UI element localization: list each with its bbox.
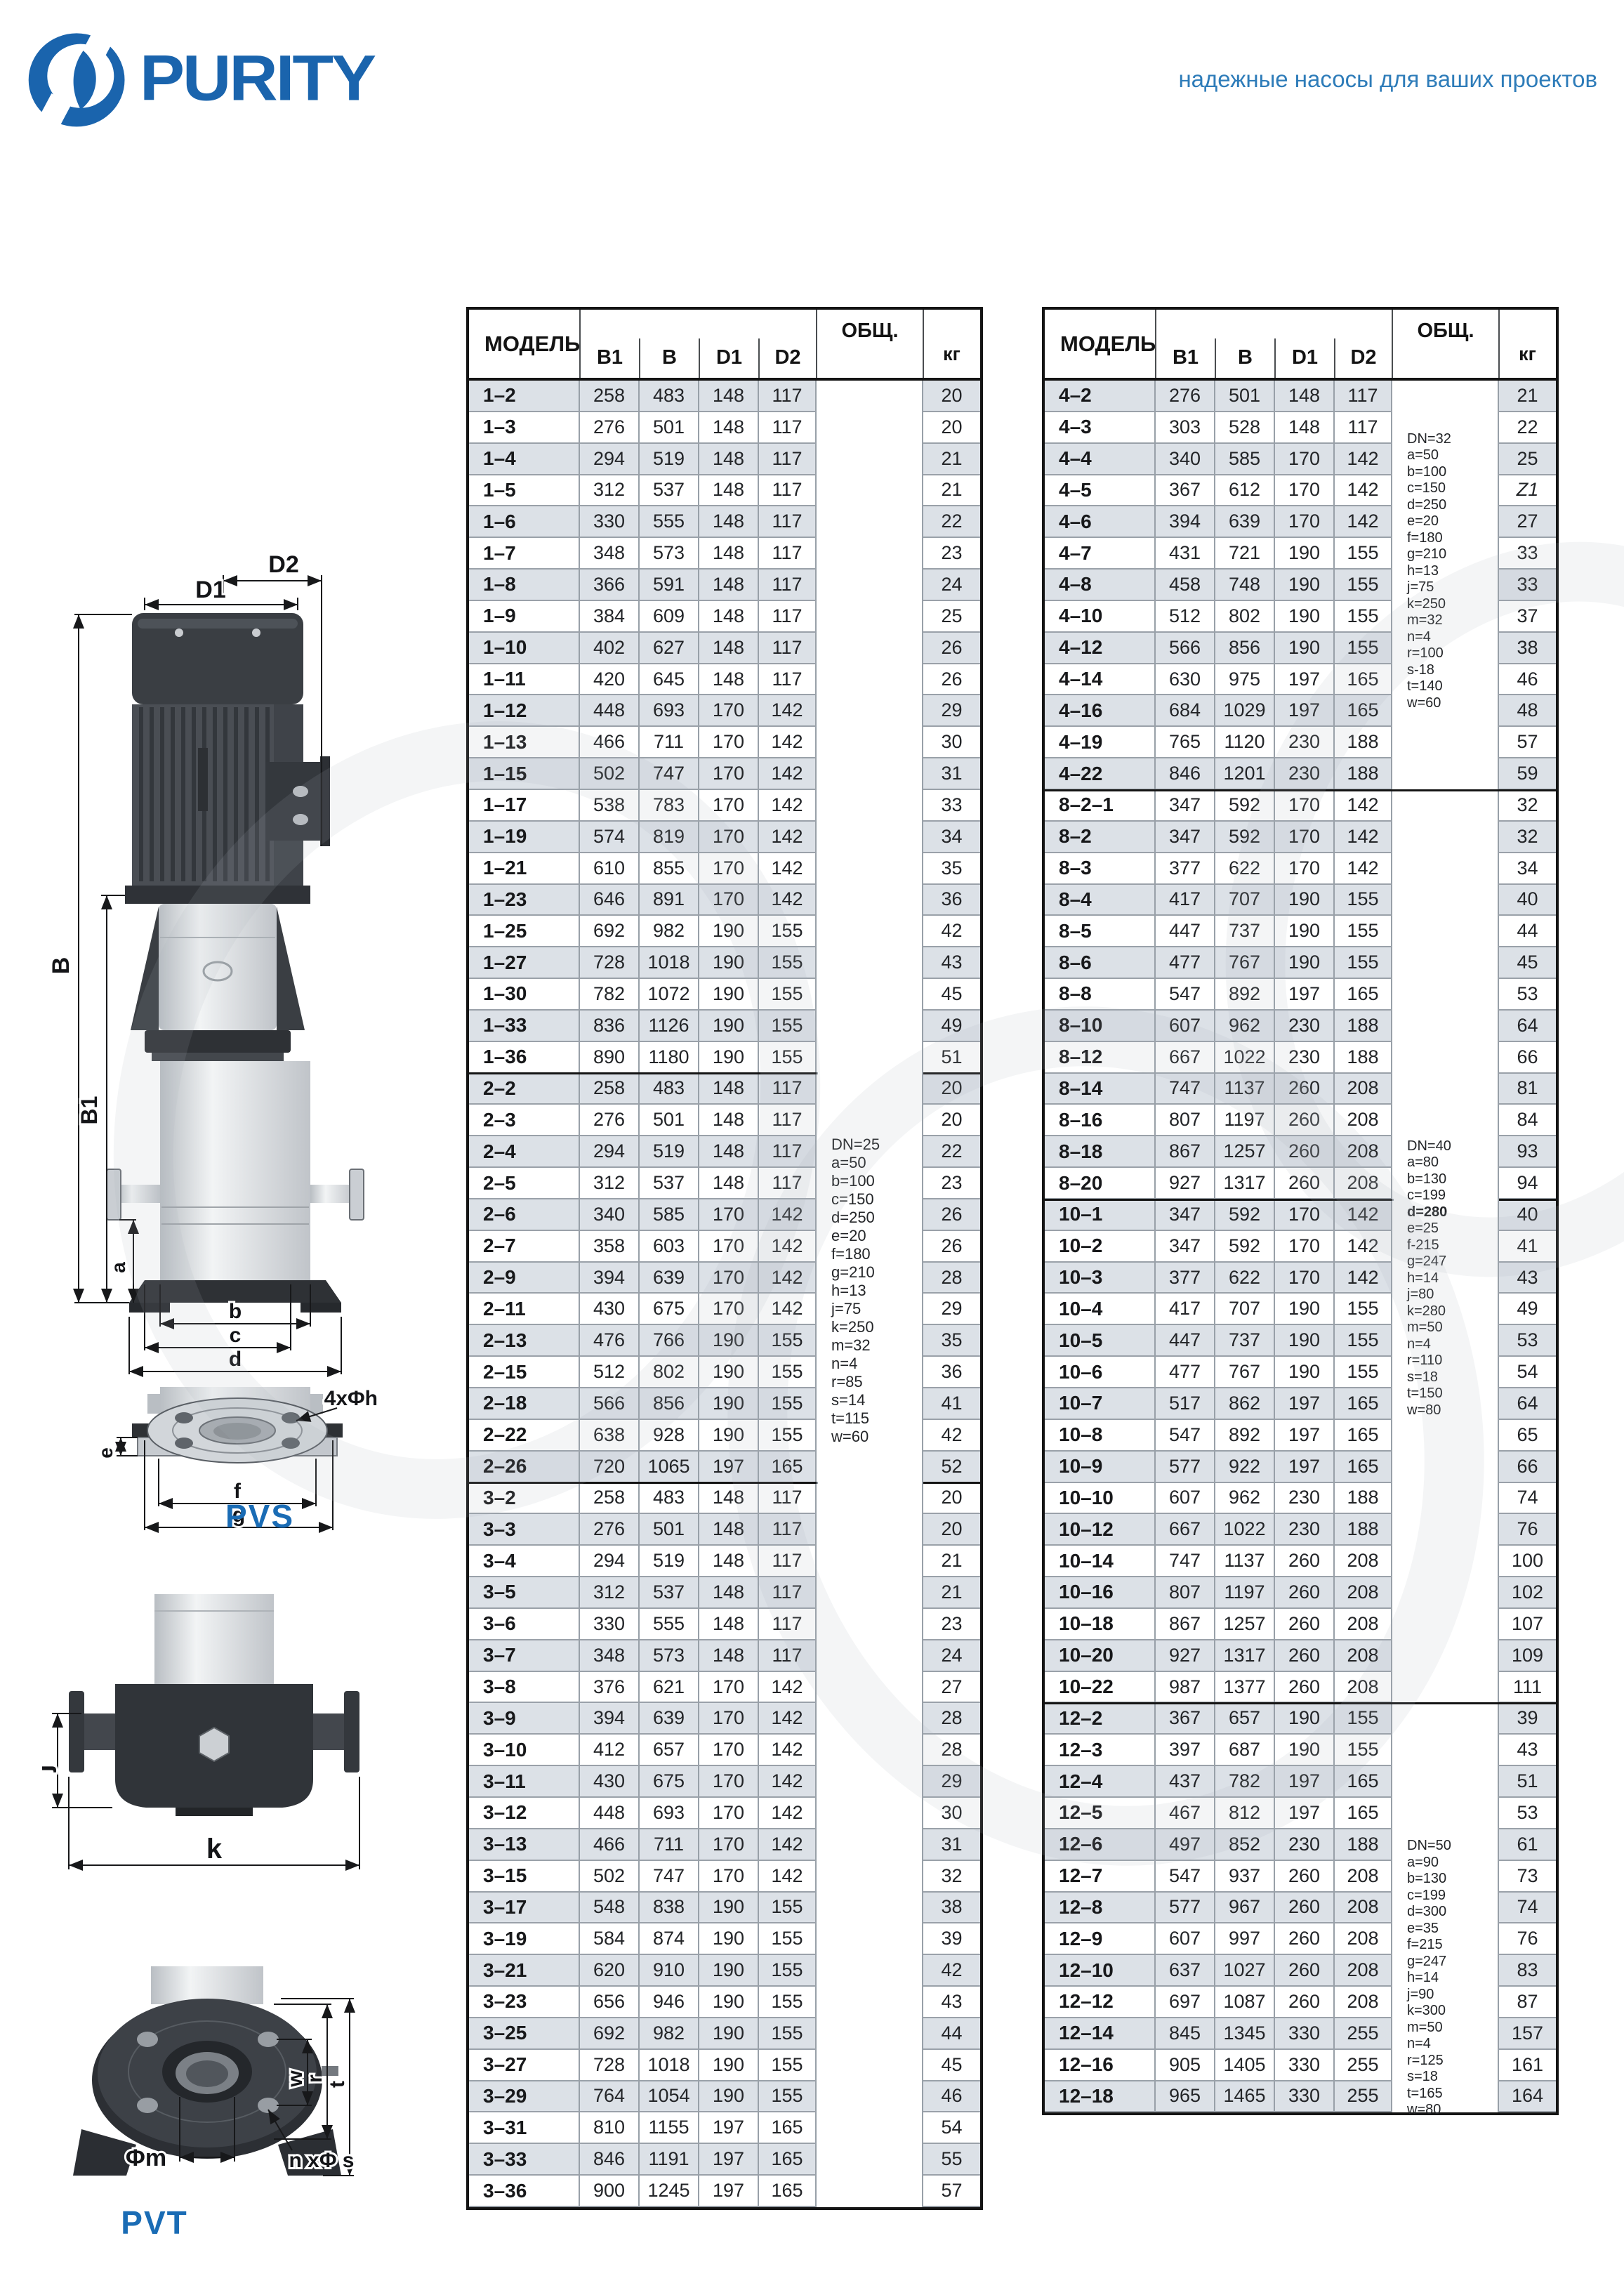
cell-dim: 142 [1335,444,1392,475]
cell-dim: 448 [580,695,640,727]
dim-label-d1: D1 [195,577,225,603]
cell-dim: 466 [580,727,640,758]
cell-dim: 630 [1156,664,1215,696]
cell-notes [817,1483,923,1515]
cell-model: 1–10 [469,633,580,664]
table-row: 3–2569298219015544 [469,2018,980,2050]
cell-dim: 417 [1156,1294,1215,1325]
notes-line: m=50 [1407,2020,1500,2037]
cell-kg: 29 [923,695,980,727]
cell-kg: 84 [1499,1105,1556,1136]
table-header: МОДЕЛЬ B1 B D1 D2 ОБЩ. кг [1045,310,1556,381]
cell-model: 3–19 [469,1923,580,1955]
cell-dim: 142 [1335,1199,1392,1231]
cell-dim: 548 [580,1893,640,1924]
table-row: 4–19765112023018857 [1045,727,1556,758]
cell-model: 1–33 [469,1011,580,1042]
table-row: 12–443778219716551 [1045,1766,1556,1798]
notes-line: h=14 [1407,1270,1500,1287]
table-row: 3–1143067517014229 [469,1766,980,1798]
cell-dim: 170 [699,790,759,822]
notes-line: r=110 [1407,1353,1500,1369]
cell-notes [817,979,923,1011]
notes-line: d=250 [831,1209,924,1227]
cell-kg: 26 [923,1199,980,1231]
cell-dim: 1191 [640,2144,699,2176]
cell-dim: 170 [699,1231,759,1263]
cell-model: 1–15 [469,758,580,790]
cell-notes [817,1042,923,1074]
cell-model: 12–4 [1045,1766,1156,1798]
cell-model: 3–21 [469,1955,580,1987]
cell-dim: 347 [1156,1199,1215,1231]
cell-dim: 197 [1275,695,1335,727]
cell-dim: 170 [699,822,759,853]
cell-dim: 190 [1275,1357,1335,1388]
cell-notes [1392,758,1499,790]
cell-kg: 53 [1499,979,1556,1011]
cell-dim: 312 [580,1168,640,1199]
cell-model: 1–9 [469,601,580,633]
cell-dim: 208 [1335,1923,1392,1955]
cell-dim: 142 [1335,1263,1392,1294]
cell-dim: 867 [1156,1609,1215,1640]
cell-dim: 142 [1335,506,1392,538]
cell-dim: 577 [1156,1452,1215,1483]
cell-dim: 117 [759,1514,817,1546]
cell-dim: 1180 [640,1042,699,1074]
cell-notes [1392,790,1499,822]
cell-kg: 46 [1499,664,1556,696]
cell-notes [817,1074,923,1105]
cell-dim: 260 [1275,1105,1335,1136]
cell-dim: 747 [1156,1074,1215,1105]
cell-dim: 170 [1275,790,1335,822]
cell-dim: 394 [580,1263,640,1294]
table-row: 10–1060796223018874 [1045,1483,1556,1515]
cell-dim: 846 [580,2144,640,2176]
cell-dim: 965 [1156,2081,1215,2113]
notes-line: c=199 [1407,1188,1500,1204]
cell-notes [1392,947,1499,979]
cell-model: 3–4 [469,1546,580,1577]
cell-dim: 155 [759,1357,817,1388]
cell-dim: 197 [1275,664,1335,696]
notes-line: c=199 [1407,1888,1500,1905]
notes-line: s=18 [1407,2069,1500,2086]
cell-model: 8–16 [1045,1105,1156,1136]
table-row: 4–22846120123018859 [1045,758,1556,790]
cell-model: 8–4 [1045,885,1156,916]
cell-model: 1–11 [469,664,580,696]
cell-dim: 142 [1335,853,1392,885]
cell-dim: 190 [699,979,759,1011]
notes-line: w=80 [1407,2102,1500,2119]
cell-dim: 148 [699,1514,759,1546]
cell-dim: 607 [1156,1923,1215,1955]
cell-notes [817,1577,923,1609]
notes-line: b=130 [1407,1171,1500,1188]
cell-kg: 21 [923,1577,980,1609]
cell-dim: 148 [699,1136,759,1168]
cell-kg: 74 [1499,1893,1556,1924]
cell-kg: 66 [1499,1042,1556,1074]
cell-dim: 376 [580,1672,640,1704]
cell-dim: 208 [1335,1672,1392,1704]
cell-dim: 197 [1275,1766,1335,1798]
cell-notes [1392,916,1499,947]
cell-model: 3–27 [469,2050,580,2081]
cell-dim: 537 [640,475,699,507]
cell-notes [817,1514,923,1546]
cell-dim: 764 [580,2081,640,2113]
cell-model: 1–30 [469,979,580,1011]
cell-dim: 260 [1275,1987,1335,2018]
cell-kg: 21 [923,1546,980,1577]
cell-kg: 32 [923,1861,980,1893]
pvt-flange-drawing: Φm n xΦ s w r t [42,1966,372,2198]
cell-dim: 707 [1215,885,1275,916]
cell-kg: 49 [1499,1294,1556,1325]
cell-dim: 585 [1215,444,1275,475]
cell-dim: 638 [580,1420,640,1452]
cell-dim: 1465 [1215,2081,1275,2113]
cell-dim: 836 [580,1011,640,1042]
table-row: 1–1244869317014229 [469,695,980,727]
cell-kg: 45 [923,979,980,1011]
cell-notes [817,2112,923,2144]
cell-dim: 687 [1215,1735,1275,1766]
cell-kg: 46 [923,2081,980,2113]
notes-line: m=32 [831,1336,924,1355]
cell-model: 1–5 [469,475,580,507]
cell-dim: 721 [1215,538,1275,570]
cell-dim: 188 [1335,758,1392,790]
cell-notes [1392,979,1499,1011]
cell-kg: 30 [923,727,980,758]
cell-dim: 1137 [1215,1074,1275,1105]
cell-model: 4–3 [1045,412,1156,444]
cell-dim: 592 [1215,822,1275,853]
cell-dim: 430 [580,1294,640,1325]
cell-dim: 170 [699,1199,759,1231]
cell-dim: 330 [1275,2018,1335,2050]
cell-dim: 711 [640,727,699,758]
cell-dim: 612 [1215,475,1275,507]
cell-model: 2–5 [469,1168,580,1199]
cell-dim: 819 [640,822,699,853]
notes-line: j=90 [1407,1987,1500,2004]
cell-dim: 667 [1156,1514,1215,1546]
cell-kg: 32 [1499,790,1556,822]
notes-line: e=20 [1407,513,1500,530]
notes-line: r=85 [831,1373,924,1391]
cell-kg: 28 [923,1703,980,1735]
cell-dim: 276 [580,412,640,444]
cell-dim: 260 [1275,1640,1335,1672]
cell-dim: 555 [640,506,699,538]
cell-dim: 117 [759,475,817,507]
cell-model: 10–16 [1045,1577,1156,1609]
header-obsh: ОБЩ. [817,310,923,378]
cell-kg: 36 [923,1357,980,1388]
cell-dim: 1317 [1215,1168,1275,1199]
cell-model: 8–6 [1045,947,1156,979]
notes-line: w=60 [1407,695,1500,712]
cell-kg: 26 [923,664,980,696]
cell-notes [817,570,923,601]
cell-dim: 165 [759,2112,817,2144]
cell-kg: 37 [1499,601,1556,633]
notes-line: e=20 [831,1227,924,1245]
cell-dim: 142 [759,1263,817,1294]
cell-dim: 397 [1156,1735,1215,1766]
cell-kg: 45 [1499,947,1556,979]
table-row: 3–531253714811721 [469,1577,980,1609]
cell-dim: 190 [699,2050,759,2081]
cell-dim: 170 [699,1263,759,1294]
cell-dim: 117 [759,601,817,633]
table-row: 8–2–134759217014232 [1045,790,1556,822]
table-row: 8–544773719015544 [1045,916,1556,947]
cell-dim: 197 [699,2112,759,2144]
cell-dim: 155 [1335,1735,1392,1766]
table-row: 2–327650114811720 [469,1105,980,1136]
header-b1: B1 [580,310,640,378]
cell-kg: 43 [1499,1263,1556,1294]
cell-dim: 155 [759,916,817,947]
cell-dim: 728 [580,2050,640,2081]
cell-dim: 260 [1275,1136,1335,1168]
cell-dim: 852 [1215,1829,1275,1861]
cell-notes [1392,1483,1499,1515]
cell-dim: 1197 [1215,1105,1275,1136]
cell-dim: 197 [1275,1388,1335,1420]
cell-dim: 142 [759,1672,817,1704]
cell-dim: 477 [1156,1357,1215,1388]
cell-dim: 117 [759,1136,817,1168]
cell-dim: 519 [640,444,699,475]
cell-dim: 155 [1335,947,1392,979]
cell-dim: 639 [1215,506,1275,538]
cell-dim: 547 [1156,1861,1215,1893]
cell-dim: 1018 [640,947,699,979]
cell-dim: 856 [640,1388,699,1420]
cell-dim: 208 [1335,1955,1392,1987]
section-divider [1045,789,1556,791]
cell-kg: 57 [923,2176,980,2207]
cell-kg: 93 [1499,1136,1556,1168]
cell-dim: 577 [1156,1893,1215,1924]
cell-dim: 170 [699,885,759,916]
cell-kg: 34 [923,822,980,853]
cell-model: 3–17 [469,1893,580,1924]
cell-notes [1392,1042,1499,1074]
table-row: 3–837662117014227 [469,1672,980,1704]
header-d1: D1 [699,310,759,378]
table-row: 3–939463917014228 [469,1703,980,1735]
cell-model: 8–2 [1045,822,1156,853]
cell-dim: 519 [640,1136,699,1168]
cell-dim: 170 [1275,444,1335,475]
cell-dim: 155 [759,1011,817,1042]
cell-kg: 164 [1499,2081,1556,2113]
cell-kg: Z1 [1499,475,1556,507]
cell-model: 2–22 [469,1420,580,1452]
cell-dim: 502 [580,1861,640,1893]
cell-dim: 366 [580,570,640,601]
notes-line: b=100 [831,1172,924,1190]
table-row: 1–531253714811721 [469,475,980,507]
cell-dim: 394 [580,1703,640,1735]
cell-dim: 190 [1275,916,1335,947]
cell-model: 8–3 [1045,853,1156,885]
cell-dim: 142 [759,790,817,822]
table-row: 1–2569298219015542 [469,916,980,947]
cell-dim: 190 [699,2081,759,2113]
dimensions-table-right: МОДЕЛЬ B1 B D1 D2 ОБЩ. кг 4–227650114811… [1042,307,1559,2115]
cell-dim: 639 [640,1703,699,1735]
notes-line: e=35 [1407,1921,1500,1938]
cell-notes [817,1955,923,1987]
cell-dim: 1257 [1215,1609,1275,1640]
notes-line: s-18 [1407,662,1500,679]
cell-notes [817,2176,923,2207]
dim-label-j: j [42,1765,57,1773]
cell-dim: 566 [1156,633,1215,664]
dim-label-d: d [229,1348,242,1371]
cell-notes [817,412,923,444]
cell-dim: 607 [1156,1011,1215,1042]
cell-model: 2–3 [469,1105,580,1136]
cell-model: 1–7 [469,538,580,570]
cell-notes [817,947,923,979]
cell-model: 10–7 [1045,1388,1156,1420]
cell-dim: 155 [1335,916,1392,947]
cell-notes [817,1735,923,1766]
cell-dim: 148 [699,570,759,601]
cell-notes [817,475,923,507]
cell-notes [1392,1546,1499,1577]
cell-kg: 45 [923,2050,980,2081]
cell-dim: 697 [1156,1987,1215,2018]
notes-line: n=4 [1407,2036,1500,2053]
cell-dim: 260 [1275,1168,1335,1199]
cell-model: 4–8 [1045,570,1156,601]
notes-line: w=60 [831,1428,924,1446]
cell-notes [1392,1640,1499,1672]
cell-dim: 148 [699,475,759,507]
cell-dim: 155 [1335,570,1392,601]
cell-model: 10–20 [1045,1640,1156,1672]
cell-model: 8–20 [1045,1168,1156,1199]
cell-kg: 35 [923,853,980,885]
cell-dim: 838 [640,1893,699,1924]
cell-kg: 26 [923,1231,980,1263]
cell-dim: 927 [1156,1168,1215,1199]
cell-kg: 20 [923,1105,980,1136]
cell-dim: 208 [1335,1987,1392,2018]
header-d2: D2 [1335,310,1392,378]
cell-kg: 41 [1499,1231,1556,1263]
cell-dim: 197 [1275,1452,1335,1483]
cell-kg: 33 [1499,538,1556,570]
table-row: 1–429451914811721 [469,444,980,475]
cell-dim: 155 [759,1955,817,1987]
cell-kg: 40 [1499,885,1556,916]
cell-kg: 24 [923,1640,980,1672]
cell-notes [1392,1672,1499,1704]
cell-notes [817,1861,923,1893]
cell-model: 10–6 [1045,1357,1156,1388]
notes-line: h=14 [1407,1970,1500,1987]
cell-kg: 44 [923,2018,980,2050]
cell-dim: 517 [1156,1388,1215,1420]
cell-model: 1–21 [469,853,580,885]
cell-dim: 573 [640,538,699,570]
cell-dim: 937 [1215,1861,1275,1893]
notes-line: DN=25 [831,1136,924,1154]
header-kg: кг [1499,310,1556,378]
cell-model: 8–18 [1045,1136,1156,1168]
cell-dim: 155 [1335,1294,1392,1325]
cell-dim: 165 [1335,1388,1392,1420]
cell-dim: 190 [699,1325,759,1357]
cell-dim: 208 [1335,1861,1392,1893]
cell-kg: 57 [1499,727,1556,758]
cell-dim: 538 [580,790,640,822]
table-row: 8–1060796223018864 [1045,1011,1556,1042]
cell-dim: 117 [759,412,817,444]
cell-dim: 312 [580,1577,640,1609]
cell-dim: 340 [1156,444,1215,475]
cell-dim: 890 [580,1042,640,1074]
cell-dim: 148 [699,633,759,664]
cell-dim: 190 [1275,1294,1335,1325]
table-row: 1–1550274717014231 [469,758,980,790]
notes-line: h=13 [1407,563,1500,580]
cell-dim: 537 [640,1577,699,1609]
cell-dim: 142 [1335,475,1392,507]
cell-dim: 622 [1215,853,1275,885]
table-row: 2–225848314811720 [469,1074,980,1105]
cell-notes [817,2144,923,2176]
cell-dim: 165 [759,1452,817,1483]
notes-line: g=247 [1407,1254,1500,1270]
cell-dim: 294 [580,444,640,475]
cell-dim: 657 [640,1735,699,1766]
cell-dim: 197 [1275,979,1335,1011]
cell-dim: 155 [759,1388,817,1420]
cell-model: 8–2–1 [1045,790,1156,822]
cell-notes [817,1640,923,1672]
dim-label-t: t [326,2081,349,2088]
cell-notes [817,916,923,947]
cell-dim: 555 [640,1609,699,1640]
cell-dim: 208 [1335,1074,1392,1105]
cell-dim: 574 [580,822,640,853]
cell-kg: 20 [923,412,980,444]
cell-model: 2–26 [469,1452,580,1483]
cell-dim: 384 [580,601,640,633]
cell-notes [817,381,923,412]
header-model: МОДЕЛЬ [1045,310,1156,378]
cell-dim: 165 [1335,695,1392,727]
cell-dim: 987 [1156,1672,1215,1704]
cell-model: 12–18 [1045,2081,1156,2113]
cell-dim: 975 [1215,664,1275,696]
cell-model: 3–6 [469,1609,580,1640]
